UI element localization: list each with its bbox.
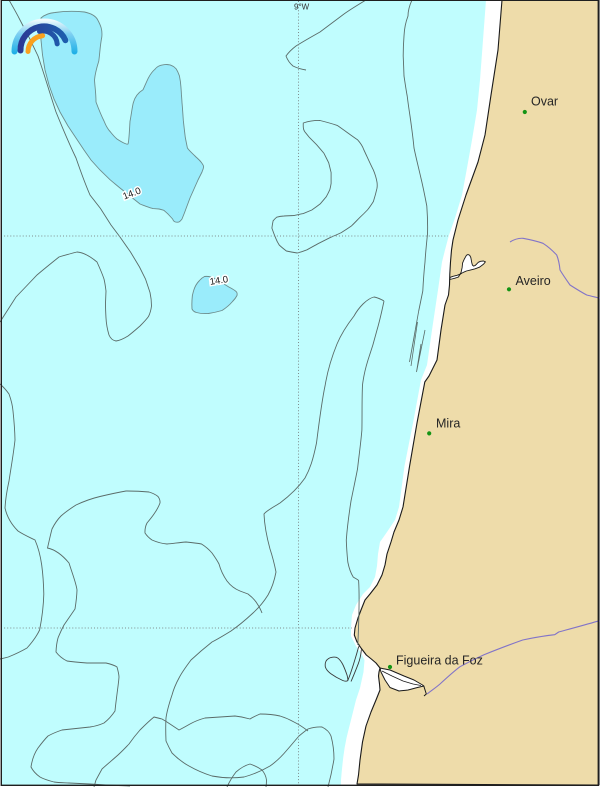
svg-text:Aveiro: Aveiro: [516, 274, 551, 288]
svg-text:Figueira da Foz: Figueira da Foz: [396, 654, 483, 668]
svg-text:Mira: Mira: [436, 417, 460, 431]
svg-text:9°W: 9°W: [294, 3, 310, 12]
svg-text:Ovar: Ovar: [531, 95, 558, 109]
